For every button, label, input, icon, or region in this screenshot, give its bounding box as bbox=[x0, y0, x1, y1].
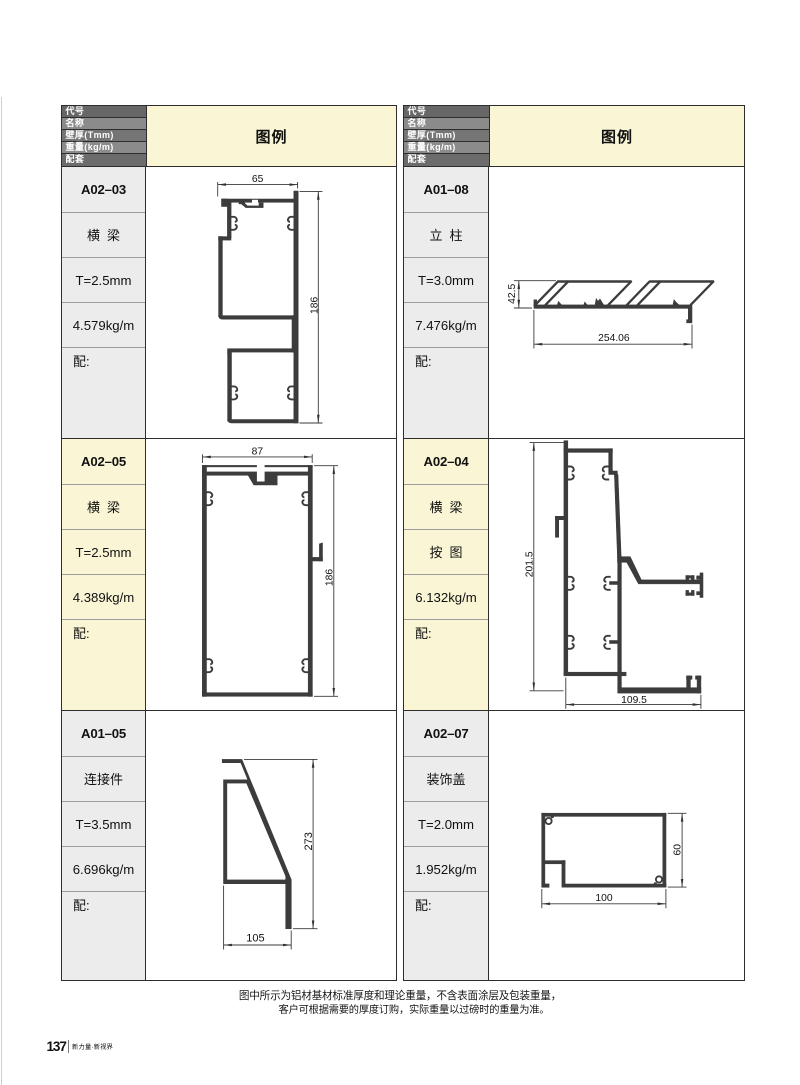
svg-text:87: 87 bbox=[252, 446, 264, 457]
svg-text:273: 273 bbox=[303, 832, 315, 850]
svg-text:42.5: 42.5 bbox=[507, 284, 518, 304]
svg-text:105: 105 bbox=[246, 932, 264, 944]
svg-text:109.5: 109.5 bbox=[621, 695, 647, 706]
svg-text:60: 60 bbox=[673, 844, 684, 856]
svg-text:65: 65 bbox=[252, 174, 264, 185]
svg-text:254.06: 254.06 bbox=[598, 333, 630, 344]
svg-text:186: 186 bbox=[310, 297, 321, 314]
svg-text:186: 186 bbox=[324, 569, 335, 586]
svg-text:100: 100 bbox=[595, 893, 612, 904]
svg-text:201.5: 201.5 bbox=[525, 551, 536, 577]
